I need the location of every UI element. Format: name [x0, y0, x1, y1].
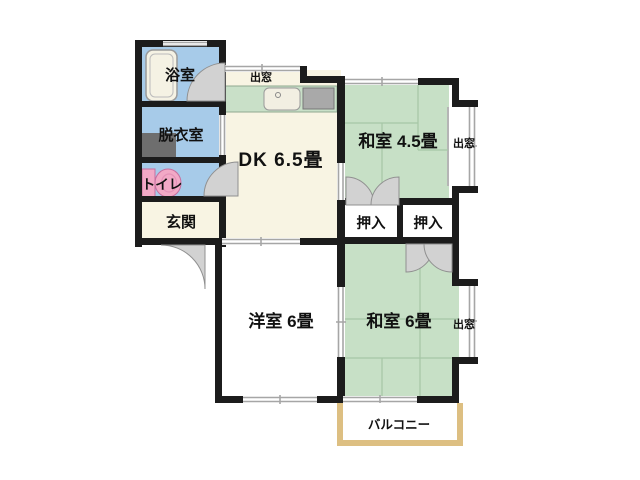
bay-window-cap — [452, 100, 478, 107]
label-closet-left: 押入 — [357, 214, 386, 232]
label-entrance: 玄関 — [166, 213, 196, 231]
wall — [135, 101, 226, 107]
wall — [135, 40, 142, 247]
floorplan-svg: 浴室 脱衣室 トイレ 玄関 DK 6.5畳 和室 4.5畳 押入 押入 洋室 6… — [0, 0, 640, 480]
balcony-rail — [457, 403, 463, 446]
label-dressing: 脱衣室 — [158, 126, 203, 144]
label-baywindow-right-upper: 出窓 — [453, 136, 475, 150]
label-baywindow-top: 出窓 — [250, 70, 272, 84]
wall — [135, 157, 226, 163]
kitchen-stove — [303, 88, 334, 109]
wall — [337, 78, 345, 163]
wall — [337, 200, 345, 243]
label-baywindow-right-lower: 出窓 — [453, 317, 475, 331]
entrance-door — [161, 245, 205, 289]
label-western-room: 洋室 6畳 — [248, 311, 313, 331]
balcony-rail — [337, 403, 343, 446]
wall — [135, 238, 222, 245]
bay-window-cap — [452, 186, 478, 193]
balcony-rail — [337, 440, 463, 446]
label-balcony: バルコニー — [368, 418, 430, 432]
label-washitsu6: 和室 6畳 — [366, 311, 431, 331]
label-toilet: トイレ — [142, 177, 183, 192]
bay-window-cap — [452, 279, 478, 286]
wall — [135, 196, 226, 202]
wall — [397, 200, 403, 243]
label-dk: DK 6.5畳 — [238, 149, 323, 171]
label-bathroom: 浴室 — [165, 66, 195, 84]
label-washitsu45: 和室 4.5畳 — [358, 131, 437, 151]
bay-opening-edge — [447, 107, 449, 186]
floorplan-canvas: 浴室 脱衣室 トイレ 玄関 DK 6.5畳 和室 4.5畳 押入 押入 洋室 6… — [0, 0, 640, 480]
label-closet-right: 押入 — [414, 214, 443, 232]
wall — [215, 238, 222, 403]
wall — [337, 237, 459, 244]
kitchen-sink — [264, 88, 300, 110]
